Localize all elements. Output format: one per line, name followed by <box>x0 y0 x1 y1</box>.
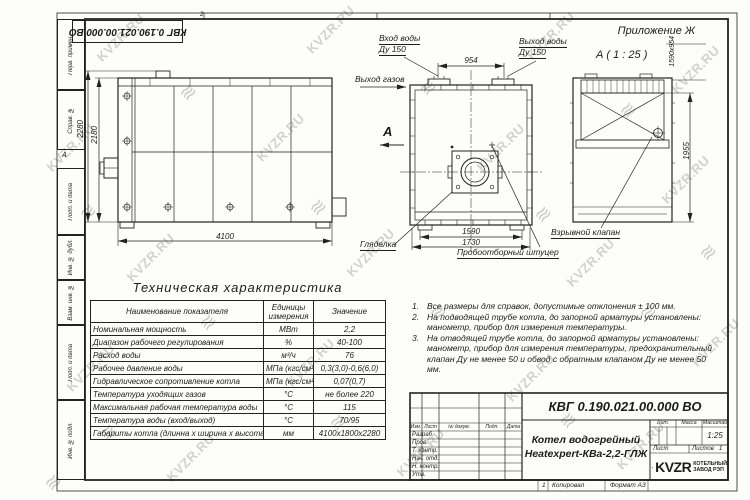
param-name: Номинальная мощность <box>91 323 264 336</box>
param-value: 2,2 <box>314 323 386 336</box>
param-value: 70/95 <box>314 414 386 427</box>
kvzr-logo-subtext: КОТЕЛЬНЫЙ ЗАВОД РЭП <box>693 461 727 473</box>
param-unit: МВт <box>264 323 314 336</box>
lit-header: Лит. <box>650 420 676 426</box>
param-unit: МПа (кгс/см²) <box>264 362 314 375</box>
note-number: 1. <box>412 301 427 312</box>
table-row: Температура воды (вход/выход)°С70/95 <box>91 414 386 427</box>
row-prov: Пров. <box>412 440 428 446</box>
stamp-label: Подп. и дата <box>68 183 74 221</box>
note-item: 3.На отводящей трубе котла, до запорной … <box>412 333 712 375</box>
note-text: На отводящей трубе котла, до запорной ар… <box>427 333 712 375</box>
stamp-inv-podl: Инв. № подл. <box>57 400 85 480</box>
mass-header: Масса <box>676 420 702 426</box>
footer-format-label: Формат А3 <box>610 482 646 489</box>
col-doc: № докум. <box>439 424 479 430</box>
stamp-inv-dubl: Инв. № дубл. <box>57 235 85 280</box>
tech-table: Наименование показателя Единицы измерени… <box>90 300 386 440</box>
param-value: 0,3(3,0)-0,6(6,0) <box>314 362 386 375</box>
table-row: Расход водым³/ч76 <box>91 349 386 362</box>
row-nachotd: Нач. отд. <box>412 456 439 462</box>
top-view-lines <box>570 44 706 228</box>
param-name: Температура уходящих газов <box>91 388 264 401</box>
note-item: 2.На подводящей трубе котла, до запорной… <box>412 312 712 333</box>
col-list: Лист <box>422 424 439 430</box>
sight-glass-label: Гляделка <box>360 239 396 251</box>
param-unit: °С <box>264 401 314 414</box>
stamp-label: Справ. № <box>68 107 74 134</box>
row-tkontr: Т. контр. <box>412 448 438 454</box>
dim-height-body: 2180 <box>90 126 99 144</box>
sheets-label: Листов <box>692 446 714 452</box>
kvzr-logo-icon <box>652 461 653 474</box>
explosion-valve-label: Взрывной клапан <box>551 227 620 239</box>
param-unit: % <box>264 336 314 349</box>
stamp-vzam-inv: Взам. инв. № <box>57 280 85 325</box>
note-text: На подводящей трубе котла, до запорной а… <box>427 312 712 333</box>
stamp-label: Инв. № дубл. <box>68 239 74 275</box>
footer-copied-label: Копировал <box>552 482 584 489</box>
sampling-fitting-label: Пробоотборный штуцер <box>457 247 559 259</box>
param-name: Максимальная рабочая температура воды <box>91 401 264 414</box>
table-row: Габариты котла (длинна х ширина х высота… <box>91 427 386 440</box>
stamp-label: Взам. инв. № <box>68 284 74 321</box>
titleblock-product-name: Котел водогрейный Heatexpert-КВа-2,2-ГЛЖ <box>522 422 650 472</box>
param-unit: °С <box>264 414 314 427</box>
dim-nozzles: 954 <box>458 56 484 65</box>
param-name: Температура воды (вход/выход) <box>91 414 264 427</box>
notes-list: 1.Все размеры для справок, допустимые от… <box>412 301 712 375</box>
param-value: 4100х1800х2280 <box>314 427 386 440</box>
scale-value: 1:25 <box>702 431 728 440</box>
note-item: 1.Все размеры для справок, допустимые от… <box>412 301 712 312</box>
footer-number: 1 <box>542 482 546 489</box>
param-unit: °С <box>264 388 314 401</box>
stamp-label: Подп. и дата <box>68 344 74 382</box>
titleblock-doc-number: КВГ 0.190.021.00.000 ВО <box>522 393 728 420</box>
table-row: Гидравлическое сопротивление котлаМПа (к… <box>91 375 386 388</box>
dim-hatch: 1590х954 <box>669 36 676 67</box>
zone-number-top: 2 <box>200 11 204 18</box>
side-view-lines <box>84 71 346 246</box>
kvzr-logo-text: KVZR <box>655 459 691 475</box>
note-number: 3. <box>412 333 427 375</box>
table-row: Номинальная мощностьМВт2,2 <box>91 323 386 336</box>
param-name: Габариты котла (длинна х ширина х высота… <box>91 427 264 440</box>
param-name: Рабочее давление воды <box>91 362 264 375</box>
param-value: 0,07(0,7) <box>314 375 386 388</box>
row-razrab: Разраб. <box>412 432 434 438</box>
rotated-doc-number-box: КВГ 0.190.021.00.000 ВО <box>72 20 183 43</box>
sheet-label: Лист <box>653 446 668 452</box>
view-a-title: А ( 1 : 25 ) <box>596 49 647 61</box>
param-value: 76 <box>314 349 386 362</box>
dim-length: 4100 <box>205 232 245 241</box>
rotated-doc-number: КВГ 0.190.021.00.000 ВО <box>69 26 187 37</box>
product-line1: Котел водогрейный <box>532 434 640 446</box>
param-unit: мм <box>264 427 314 440</box>
logo-line2: ЗАВОД РЭП <box>693 467 727 473</box>
param-name: Расход воды <box>91 349 264 362</box>
param-value: 40-100 <box>314 336 386 349</box>
water-inlet-dn: Ду 150 <box>379 44 406 56</box>
param-name: Гидравлическое сопротивление котла <box>91 375 264 388</box>
front-view-lines <box>360 57 544 252</box>
dim-depth: 1955 <box>682 142 691 160</box>
sheets-value: 1 <box>719 446 722 452</box>
zone-letter-left: А <box>62 152 67 159</box>
view-arrow-letter: А <box>383 124 392 139</box>
param-unit: м³/ч <box>264 349 314 362</box>
tech-table-title: Техническая характеристика <box>90 280 385 295</box>
col-header-units: Единицы измерения <box>264 301 314 323</box>
col-header-name: Наименование показателя <box>91 301 264 323</box>
table-row: Диапазон рабочего регулирования%40-100 <box>91 336 386 349</box>
drawing-sheet: { "watermark": {"text": "KVZR.RU", "logo… <box>0 0 750 500</box>
param-unit: МПа (кгс/см²) <box>264 375 314 388</box>
gas-outlet-label: Выход газов <box>355 74 405 84</box>
product-line2: Heatexpert-КВа-2,2-ГЛЖ <box>525 448 648 460</box>
note-text: Все размеры для справок, допустимые откл… <box>427 301 676 312</box>
water-outlet-dn: Ду 150 <box>519 47 546 59</box>
dim-width-outer: 1730 <box>456 238 486 247</box>
table-row: Температура уходящих газов°Сне более 220 <box>91 388 386 401</box>
table-row: Рабочее давление водыМПа (кгс/см²)0,3(3,… <box>91 362 386 375</box>
scale-header: Масштаб <box>702 420 728 426</box>
stamp-label: Перв. примен. <box>68 35 74 75</box>
stamp-label: Инв. № подл. <box>68 422 74 459</box>
row-utv: Утв. <box>412 472 426 478</box>
stamp-podp-data-2: Подп. и дата <box>57 325 85 400</box>
note-number: 2. <box>412 312 427 333</box>
col-podp: Подп. <box>479 424 505 430</box>
dim-width-inner: 1590 <box>456 227 486 236</box>
kvzr-logo: KVZR КОТЕЛЬНЫЙ ЗАВОД РЭП <box>652 455 727 479</box>
table-row: Максимальная рабочая температура воды°С1… <box>91 401 386 414</box>
param-value: не более 220 <box>314 388 386 401</box>
dim-height-total: 2280 <box>76 120 85 138</box>
appendix-label: Приложение Ж <box>595 25 695 37</box>
col-izm: Изм. <box>410 424 422 430</box>
row-nkontr: Н. контр. <box>412 464 439 470</box>
param-value: 115 <box>314 401 386 414</box>
col-data: Дата <box>505 424 522 430</box>
stamp-podp-data-1: Подп. и дата <box>57 168 85 235</box>
param-name: Диапазон рабочего регулирования <box>91 336 264 349</box>
stamp-perv-primen: Перв. примен. <box>57 19 85 90</box>
col-header-value: Значение <box>314 301 386 323</box>
